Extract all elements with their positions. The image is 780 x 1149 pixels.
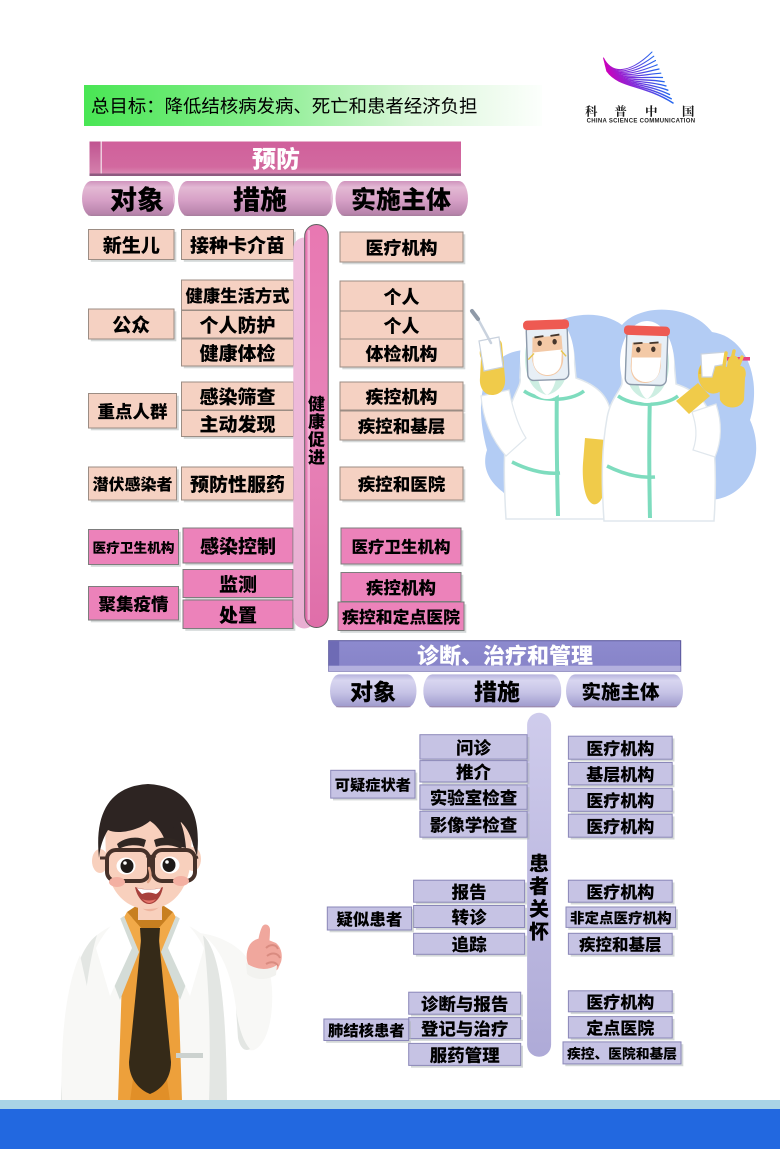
svg-text:CHINA SCIENCE COMMUNICATION: CHINA SCIENCE COMMUNICATION <box>587 119 696 125</box>
